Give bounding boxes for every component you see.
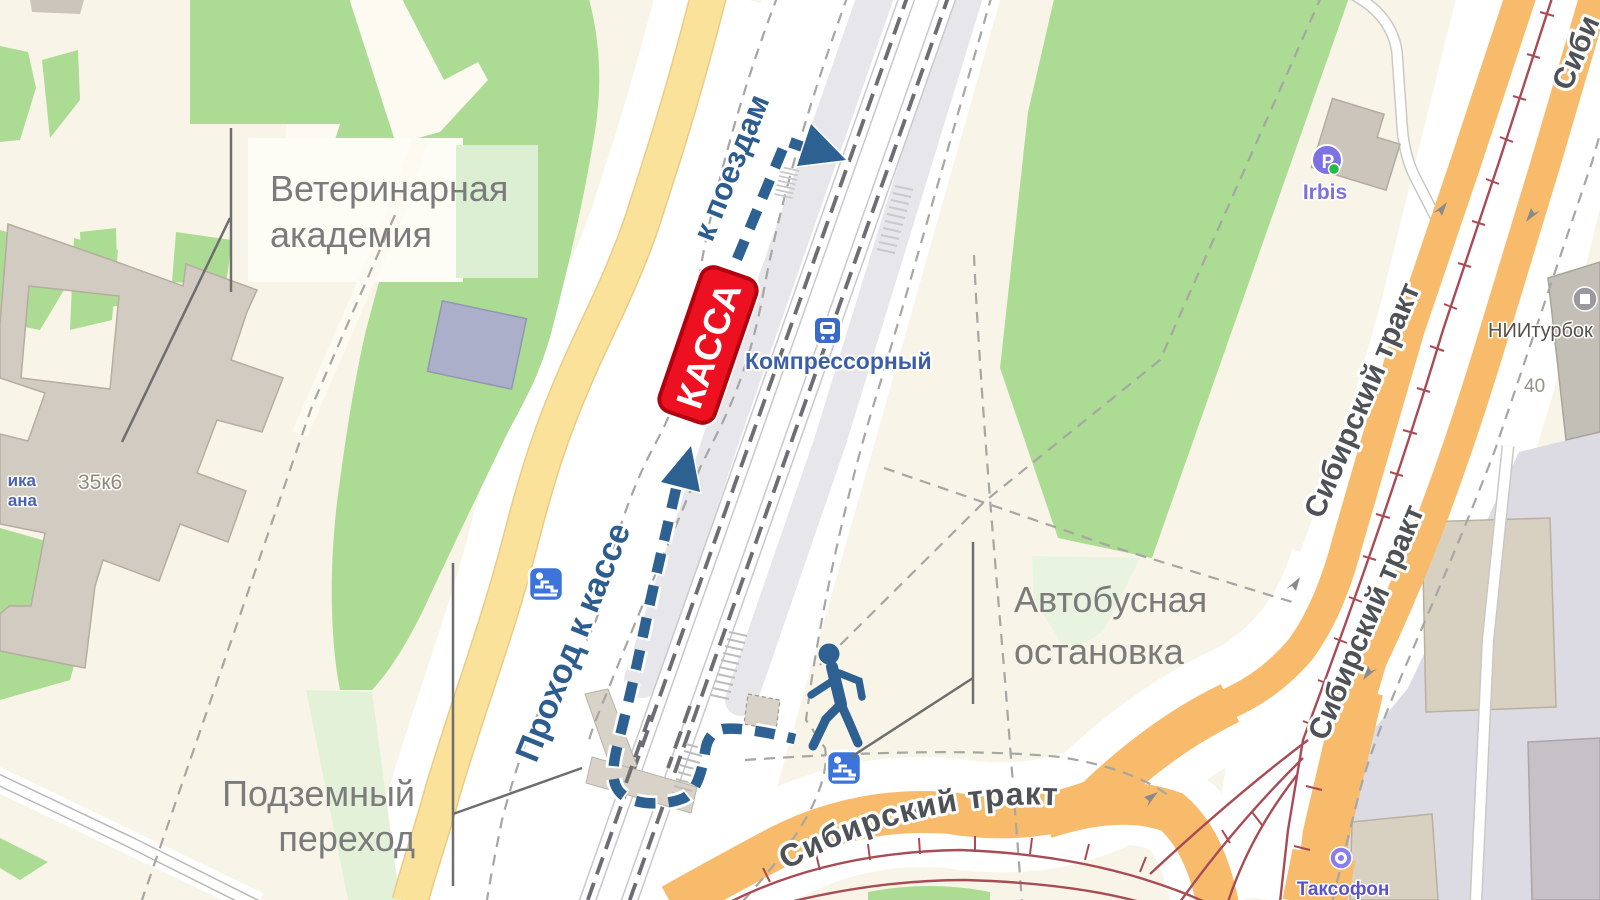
svg-text:НИИтурбок: НИИтурбок [1488,320,1593,342]
svg-text:Таксофон: Таксофон [1297,879,1390,900]
svg-text:ика: ика [8,471,37,490]
svg-text:Подземный: Подземный [222,773,415,814]
svg-text:Компрессорный: Компрессорный [745,348,932,374]
svg-text:остановка: остановка [1014,631,1185,672]
svg-text:Автобусная: Автобусная [1014,579,1207,620]
svg-text:ана: ана [8,491,38,510]
svg-text:40: 40 [1524,376,1545,397]
svg-text:переход: переход [278,818,415,859]
svg-text:Ветеринарная: Ветеринарная [270,168,508,209]
svg-text:35к6: 35к6 [78,471,122,494]
svg-text:Irbis: Irbis [1303,181,1347,204]
svg-text:академия: академия [270,214,432,255]
